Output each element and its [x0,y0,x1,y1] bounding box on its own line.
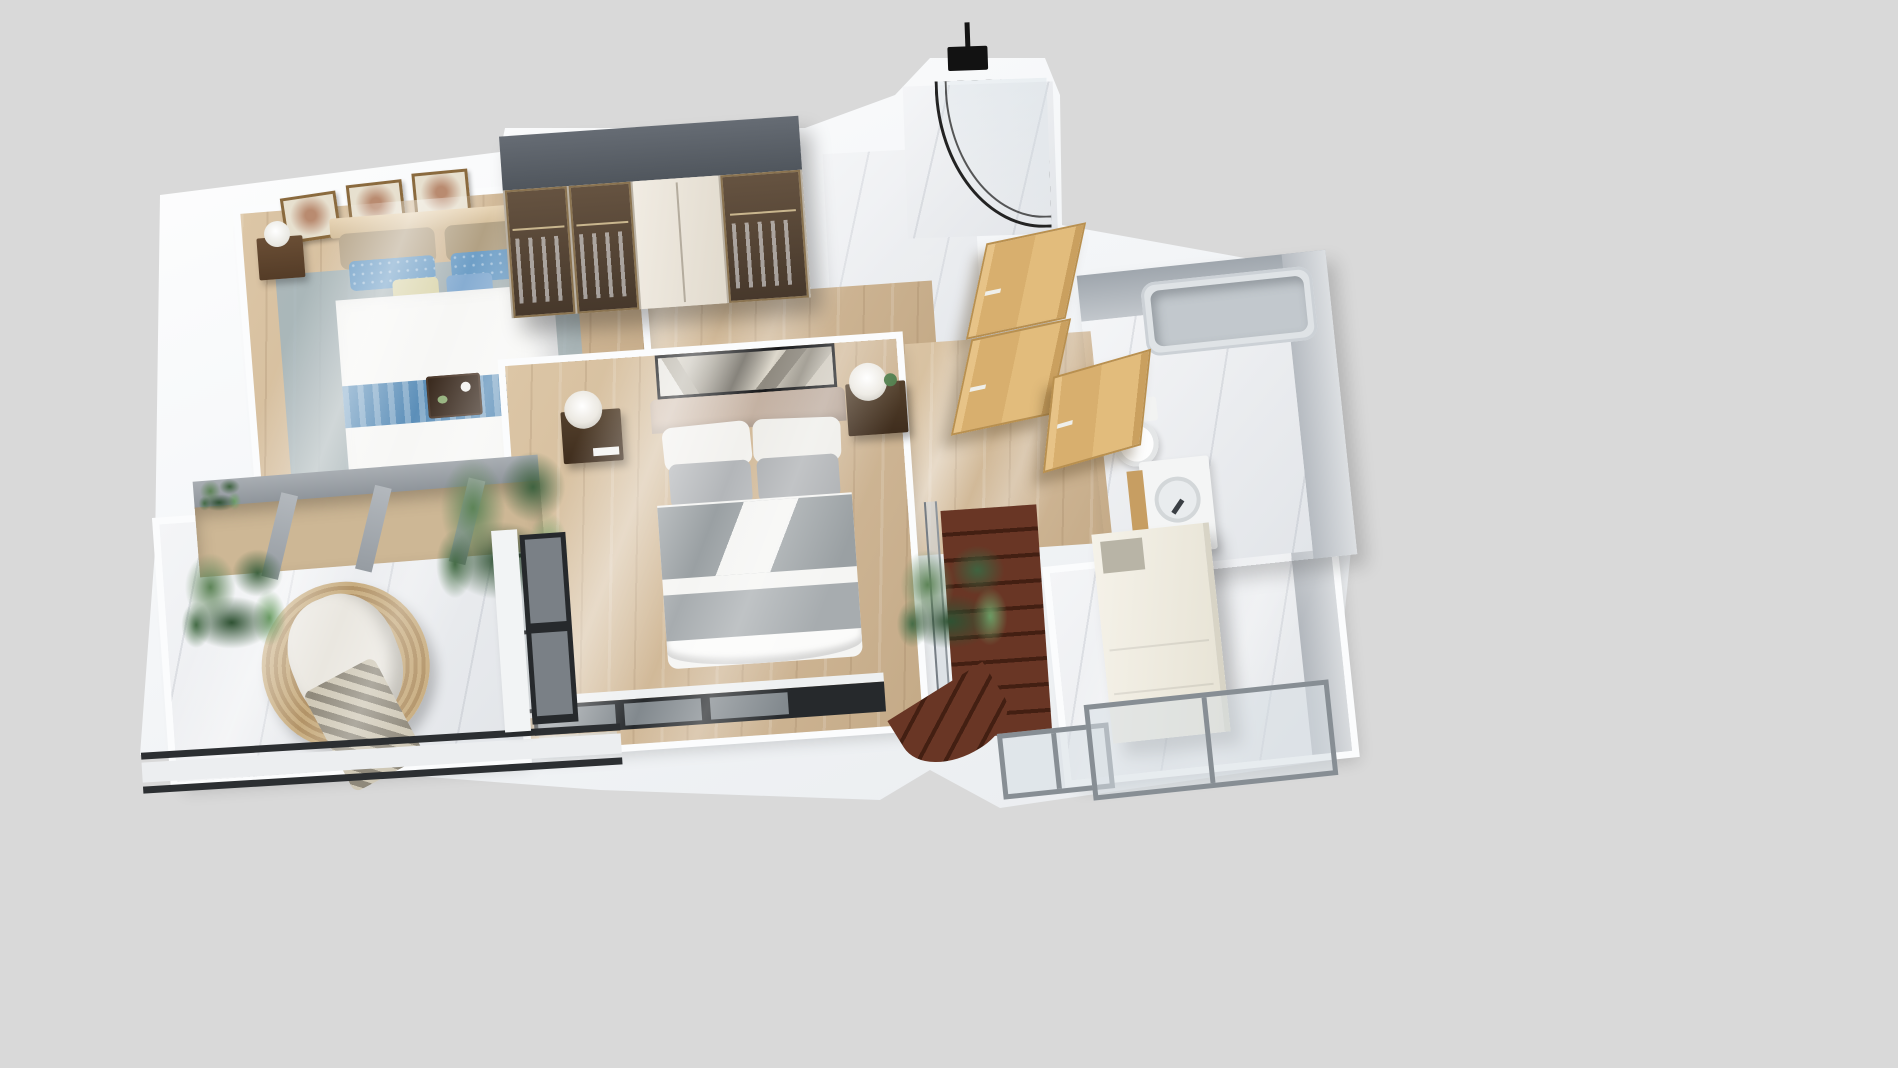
wardrobe-body [503,170,811,319]
rain-shower-head [947,46,988,71]
grey-blanket [657,494,857,579]
wardrobe [499,116,811,318]
sphere-lamp [848,362,889,403]
sink-basin [1152,474,1203,525]
nightstand [256,235,305,280]
wardrobe-glass-door [505,186,576,318]
master-bed [650,387,863,670]
shower-room [890,53,1071,249]
wardrobe-glass-door [720,170,809,303]
shower-pipe [965,22,971,48]
wardrobe-white-doors [632,175,727,309]
small-plant [883,373,897,387]
wardrobe-glass-door [569,182,640,314]
breakfast-tray [426,373,483,419]
potted-plant [175,540,293,658]
potted-plant [890,536,1015,658]
cabinet-shelf [1100,537,1145,573]
potted-plant [196,476,244,514]
sphere-lamp [563,390,604,431]
render-canvas [0,0,1898,1068]
books [593,446,619,456]
corner-window-bay [491,525,585,732]
bedside-table [845,380,908,436]
